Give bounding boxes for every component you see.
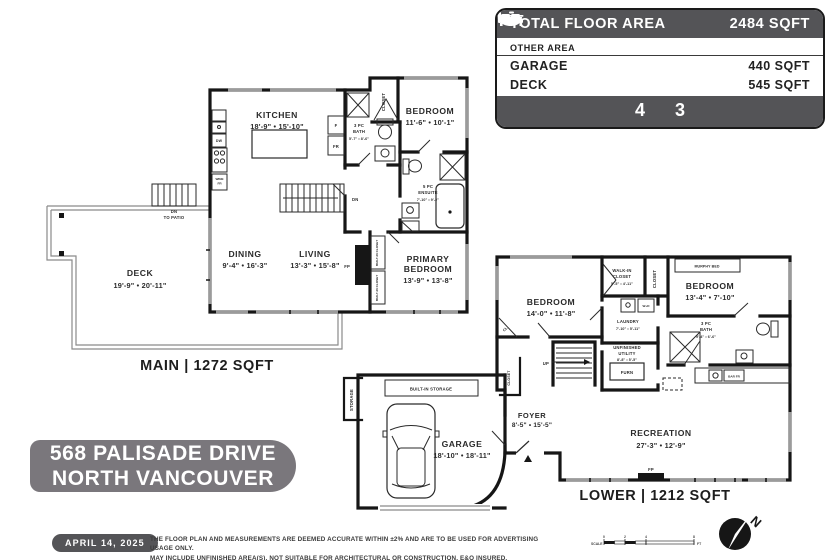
lower-bath-fixtures <box>670 321 778 363</box>
address-badge: 568 PALISADE DRIVE NORTH VANCOUVER <box>30 440 296 492</box>
storage-label: STORAGE <box>349 389 354 411</box>
floor-area-summary: TOTAL FLOOR AREA 2484 SQFT OTHER AREA GA… <box>495 8 825 129</box>
garage-walls <box>358 375 505 508</box>
dn-to-patio-label-2: TO PATIO <box>164 215 185 220</box>
scale-tick-0: 0 <box>603 535 605 539</box>
scale-tick-3: 8 <box>693 535 695 539</box>
summary-header: TOTAL FLOOR AREA 2484 SQFT <box>497 10 823 40</box>
walkin-closet-label-2: CLOSET <box>613 274 631 279</box>
bedroom-dims: 11'-6" • 10'-1" <box>406 118 455 127</box>
garage-area-row: GARAGE 440 SQFT <box>497 56 823 75</box>
laundry-dims: 7'-10" • 5'-11" <box>616 327 640 331</box>
bar-fridge-label: BAR FR <box>728 375 740 379</box>
fireplace-label-main: FP <box>344 264 350 269</box>
foyer-closet-label: CLOSET <box>507 370 511 386</box>
lower-stairs <box>552 348 592 378</box>
main-floor-plan: KITCHEN 18'-9" • 15'-10" BEDROOM 11'-6" … <box>47 78 467 374</box>
recreation-label: RECREATION <box>630 428 691 438</box>
scale-tick-1: 2 <box>624 535 626 539</box>
washer-dryer-label: W+D <box>643 304 651 308</box>
lower-bedroom-left-label: BEDROOM <box>527 297 575 307</box>
dining-label: DINING <box>228 249 261 259</box>
deck-label: DECK <box>127 268 154 278</box>
dn-to-patio-label-1: DN <box>171 209 177 214</box>
scale-label: SCALE <box>591 542 603 546</box>
built-in-storage-label: BUILT-IN STORAGE <box>410 387 452 392</box>
laundry-label: LAUNDRY <box>617 319 639 324</box>
lower-floor-plan: BEDROOM 14'-0" • 11'-8" BEDROOM 13'-4" •… <box>344 257 790 512</box>
main-floor-title: MAIN | 1272 SQFT <box>140 358 274 374</box>
north-arrow-icon: N <box>719 511 765 550</box>
furnace-label: FURN <box>621 370 633 375</box>
deck-area-row: DECK 545 SQFT <box>497 75 823 94</box>
built-in-closet-label-2: BUILT-IN CLOSET <box>375 275 379 301</box>
primary-bedroom-label-2: BEDROOM <box>404 264 452 274</box>
other-area-label: OTHER AREA <box>510 43 575 53</box>
garage-label: GARAGE <box>442 439 483 449</box>
ensuite-label-1: 5 PC <box>423 184 433 189</box>
living-dims: 13'-3" • 15'-8" <box>290 261 339 270</box>
summary-footer: 4 3 <box>497 96 823 127</box>
lower-floor-title: LOWER | 1212 SQFT <box>579 488 730 504</box>
bedroom-label: BEDROOM <box>406 106 454 116</box>
main-stairs <box>280 184 344 212</box>
patio-stairs <box>152 184 196 206</box>
car-icon <box>383 404 439 498</box>
deck-area-label: DECK <box>510 78 547 92</box>
dishwasher-label: DW <box>216 139 223 143</box>
deck-dims: 19'-9" • 20'-11" <box>113 281 166 290</box>
fireplace-main <box>355 245 369 285</box>
murphy-bed-label: MURPHY BED <box>694 265 719 269</box>
disclaimer-line-1: THE FLOOR PLAN AND MEASUREMENTS ARE DEEM… <box>150 535 550 554</box>
summary-title: TOTAL FLOOR AREA <box>510 16 666 32</box>
utility-dims: 8'-8" • 5'-5" <box>617 358 637 362</box>
foyer-dims: 8'-5" • 15'-5" <box>512 422 552 429</box>
lower-bath-dims: 9'-4" • 6'-6" <box>696 335 716 339</box>
bath-count: 3 <box>675 100 685 121</box>
utility-label-1: UNFINISHED <box>613 345 641 350</box>
bed-count: 4 <box>635 100 645 121</box>
bedroom-closet-label: CLOSET <box>381 93 386 111</box>
utility-label-2: UTILITY <box>618 351 635 356</box>
main-bath-dims: 5'-7" • 8'-6" <box>349 137 369 141</box>
garage-area-value: 440 SQFT <box>748 59 810 73</box>
lower-bath-label-2: BATH <box>700 327 712 332</box>
primary-bedroom-dims: 13'-9" • 13'-8" <box>403 276 452 285</box>
deck-outline <box>47 206 342 349</box>
ensuite-dims: 7'-10" • 9'-2" <box>417 198 439 202</box>
foyer-label: FOYER <box>518 411 546 420</box>
bath-icon <box>497 10 524 27</box>
bed-count-stat: 4 <box>635 100 645 121</box>
bath-count-stat: 3 <box>675 100 685 121</box>
deck-post <box>59 213 64 218</box>
bar-counter <box>695 368 790 383</box>
scale-unit: FT <box>697 542 702 546</box>
other-area-row: OTHER AREA <box>497 40 823 56</box>
walkin-closet-label-1: WALK-IN <box>612 268 631 273</box>
lower-bath-label-1: 3 PC <box>701 321 711 326</box>
main-bath-label-1: 3 PC <box>354 123 364 128</box>
disclaimer-text: THE FLOOR PLAN AND MEASUREMENTS ARE DEEM… <box>150 535 550 560</box>
fireplace-lower <box>638 473 664 480</box>
wine-fridge-label-1: WINE <box>215 177 223 181</box>
disclaimer-line-2: MAY INCLUDE UNFINISHED AREA(S). NOT SUIT… <box>150 554 550 560</box>
recreation-dims: 27'-3" • 12'-9" <box>636 441 685 450</box>
garage-dims: 18'-10" • 18'-11" <box>433 451 490 460</box>
fridge-label: FR <box>333 144 339 149</box>
cl-closet-label: CL <box>502 326 509 333</box>
kitchen-dims: 18'-9" • 15'-10" <box>250 122 303 131</box>
ensuite-label-2: ENSUITE <box>418 190 438 195</box>
dining-dims: 9'-4" • 16'-3" <box>223 261 268 270</box>
main-bath-label-2: BATH <box>353 129 365 134</box>
address-line-1: 568 PALISADE DRIVE <box>50 441 276 466</box>
freezer-label: F <box>335 123 338 128</box>
built-in-closet-label-1: BUILT-IN CLOSET <box>375 240 379 266</box>
front-door <box>516 441 544 462</box>
fireplace-label-lower: FP <box>648 467 654 472</box>
address-line-2: NORTH VANCOUVER <box>52 466 274 491</box>
garage-area-label: GARAGE <box>510 59 568 73</box>
wine-fridge-label-2: FR <box>217 182 222 186</box>
stairs-dn-label: DN <box>352 197 358 202</box>
floorplan-canvas: KITCHEN 18'-9" • 15'-10" BEDROOM 11'-6" … <box>0 0 840 560</box>
lower-bedroom-right-dims: 13'-4" • 7'-10" <box>685 293 734 302</box>
deck-post <box>59 251 64 256</box>
deck-area-value: 545 SQFT <box>748 78 810 92</box>
lower-bedroom-left-dims: 14'-0" • 11'-8" <box>527 309 576 318</box>
summary-total: 2484 SQFT <box>730 16 810 32</box>
living-label: LIVING <box>299 249 331 259</box>
kitchen-island <box>252 130 307 158</box>
walkin-closet-dims: 5'-5" • 4'-11" <box>611 282 633 286</box>
kitchen-label: KITCHEN <box>256 110 298 120</box>
scale-tick-2: 4 <box>645 535 647 539</box>
primary-bedroom-label-1: PRIMARY <box>407 254 450 264</box>
lower-closet-label: CLOSET <box>652 270 657 288</box>
stairs-up-label: UP <box>543 361 549 366</box>
crawl-access <box>663 378 682 390</box>
date-badge: APRIL 14, 2025 <box>52 534 158 552</box>
lower-bedroom-right-label: BEDROOM <box>686 281 734 291</box>
scale-bar: SCALE 0 2 4 8 FT <box>591 535 702 546</box>
